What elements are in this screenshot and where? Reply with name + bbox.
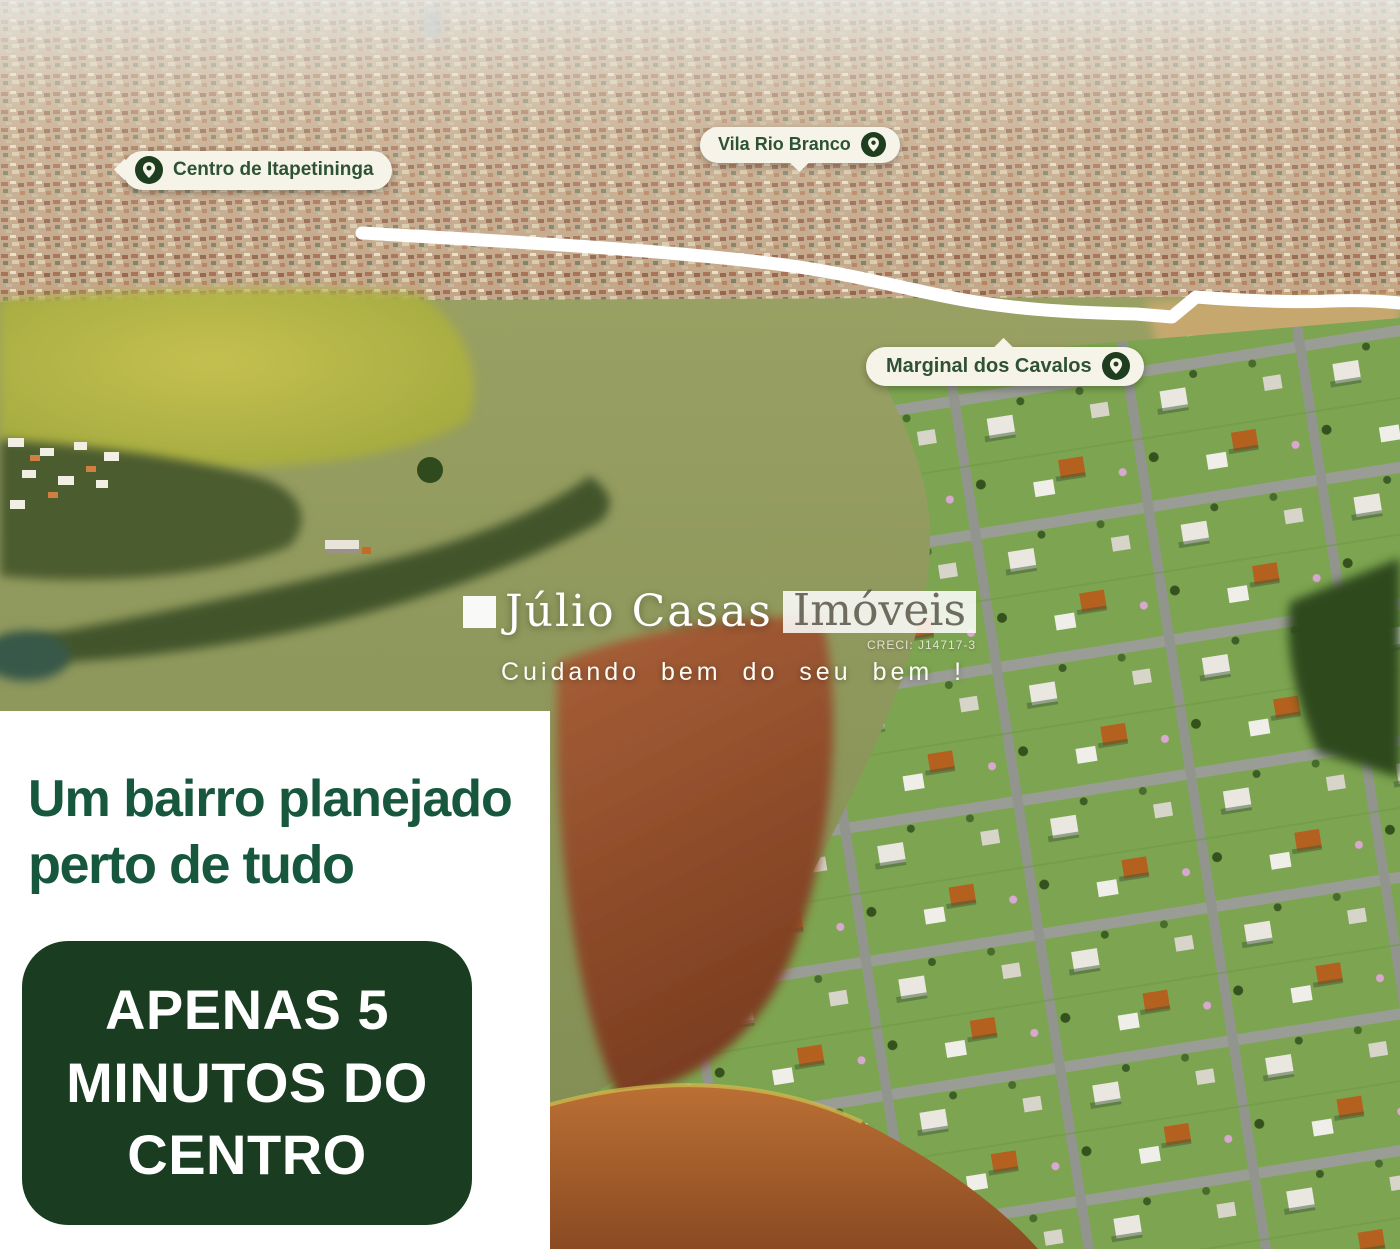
creci-registration: CRECI: J14717-3 <box>463 638 976 652</box>
cta-text: APENAS 5 MINUTOS DO CENTRO <box>66 974 428 1192</box>
brand-tagline: Cuidando bem do seu bem ! <box>463 658 976 687</box>
cta-line1: APENAS 5 <box>66 974 428 1047</box>
map-pin-icon <box>861 132 886 157</box>
location-badge-label: Marginal dos Cavalos <box>886 355 1092 378</box>
headline-line2: perto de tudo <box>28 838 512 892</box>
map-pin-icon <box>1102 352 1130 380</box>
cta-box[interactable]: APENAS 5 MINUTOS DO CENTRO <box>22 941 472 1225</box>
real-estate-promo-image: Centro de Itapetininga Vila Rio Branco M… <box>0 0 1400 1249</box>
brand-logo-mark <box>463 596 496 628</box>
info-panel: Um bairro planejado perto de tudo APENAS… <box>0 711 550 1249</box>
brand-watermark: Júlio Casas Imóveis CRECI: J14717-3 Cuid… <box>463 586 976 687</box>
map-pin-icon <box>135 156 163 184</box>
headline-line1: Um bairro planejado <box>28 773 512 825</box>
location-badge-vila-rio-branco: Vila Rio Branco <box>700 127 900 163</box>
cta-line3: CENTRO <box>66 1119 428 1192</box>
brand-name-secondary: Imóveis <box>783 591 976 633</box>
location-badge-centro: Centro de Itapetininga <box>123 151 392 190</box>
location-badge-label: Centro de Itapetininga <box>173 159 374 181</box>
headline: Um bairro planejado perto de tudo <box>28 773 512 892</box>
brand-name: Júlio Casas <box>505 586 773 637</box>
location-badge-marginal-dos-cavalos: Marginal dos Cavalos <box>866 347 1144 386</box>
cta-line2: MINUTOS DO <box>66 1047 428 1120</box>
location-badge-label: Vila Rio Branco <box>718 134 851 155</box>
